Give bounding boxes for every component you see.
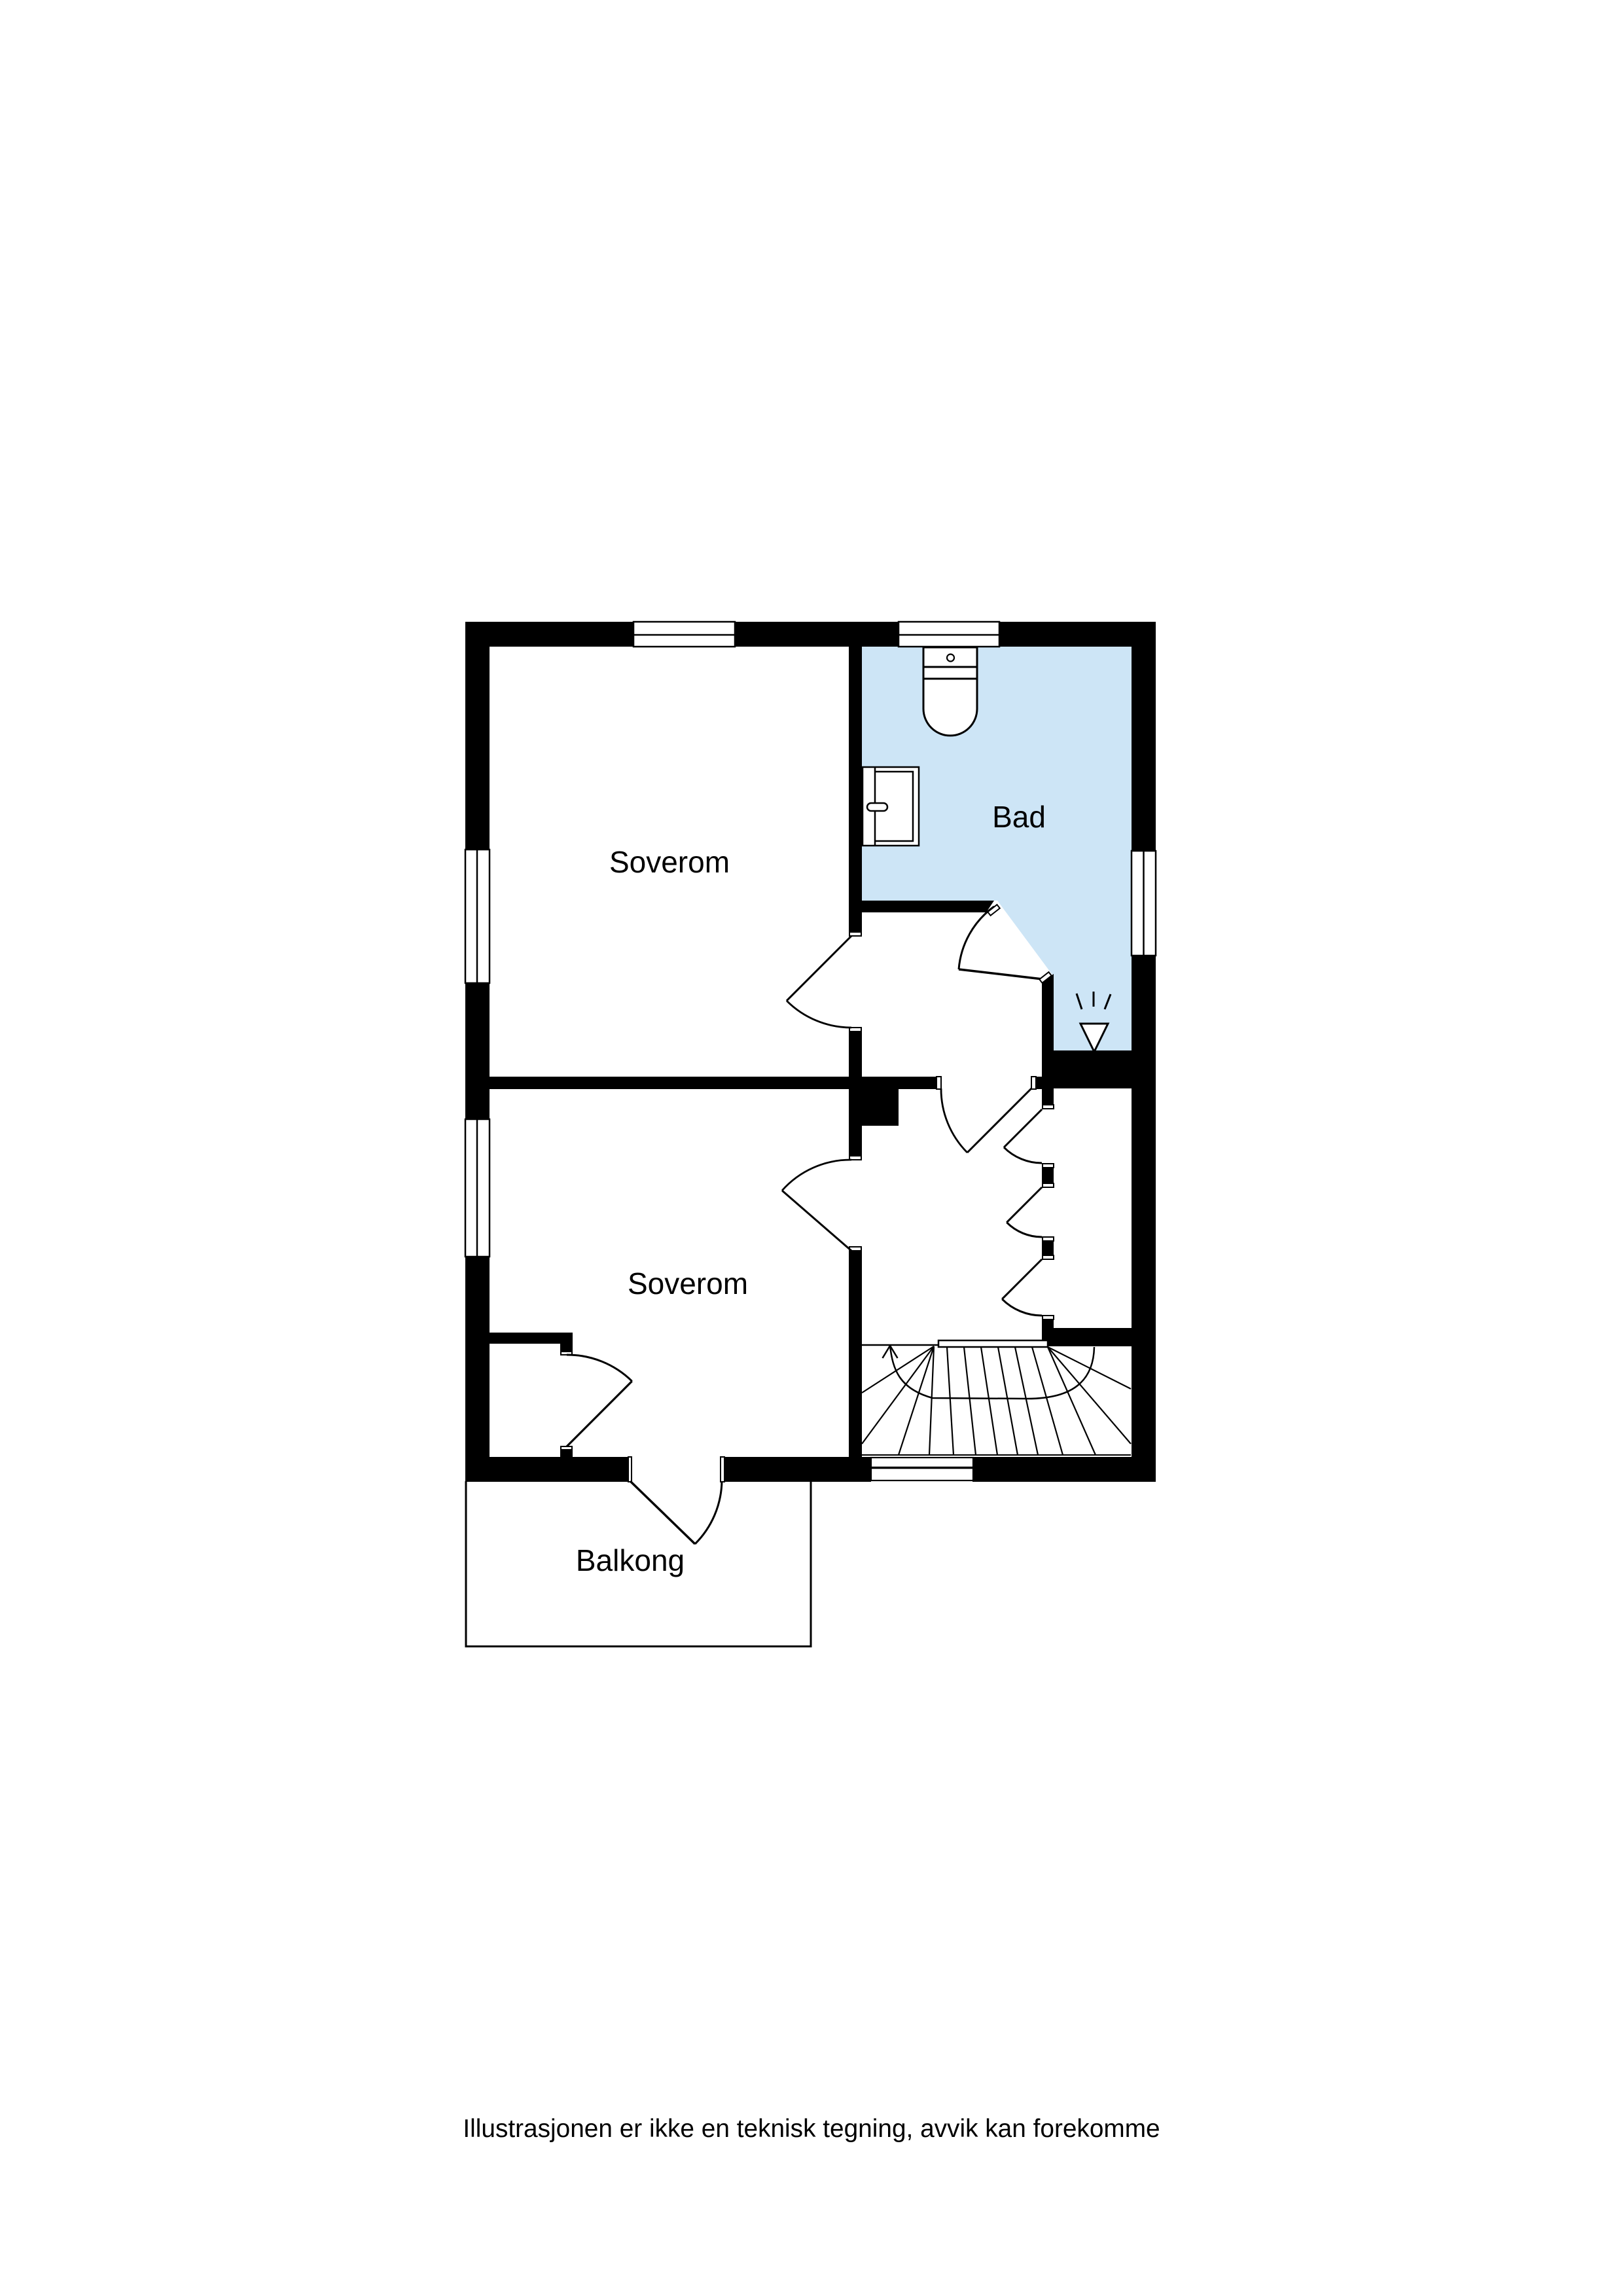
svg-text:Bad: Bad [992,800,1046,834]
svg-text:Soverom: Soverom [609,845,730,879]
svg-text:Illustrasjonen er ikke en tekn: Illustrasjonen er ikke en teknisk tegnin… [463,2115,1160,2143]
svg-text:Balkong: Balkong [576,1543,685,1577]
svg-text:Soverom: Soverom [628,1266,748,1300]
